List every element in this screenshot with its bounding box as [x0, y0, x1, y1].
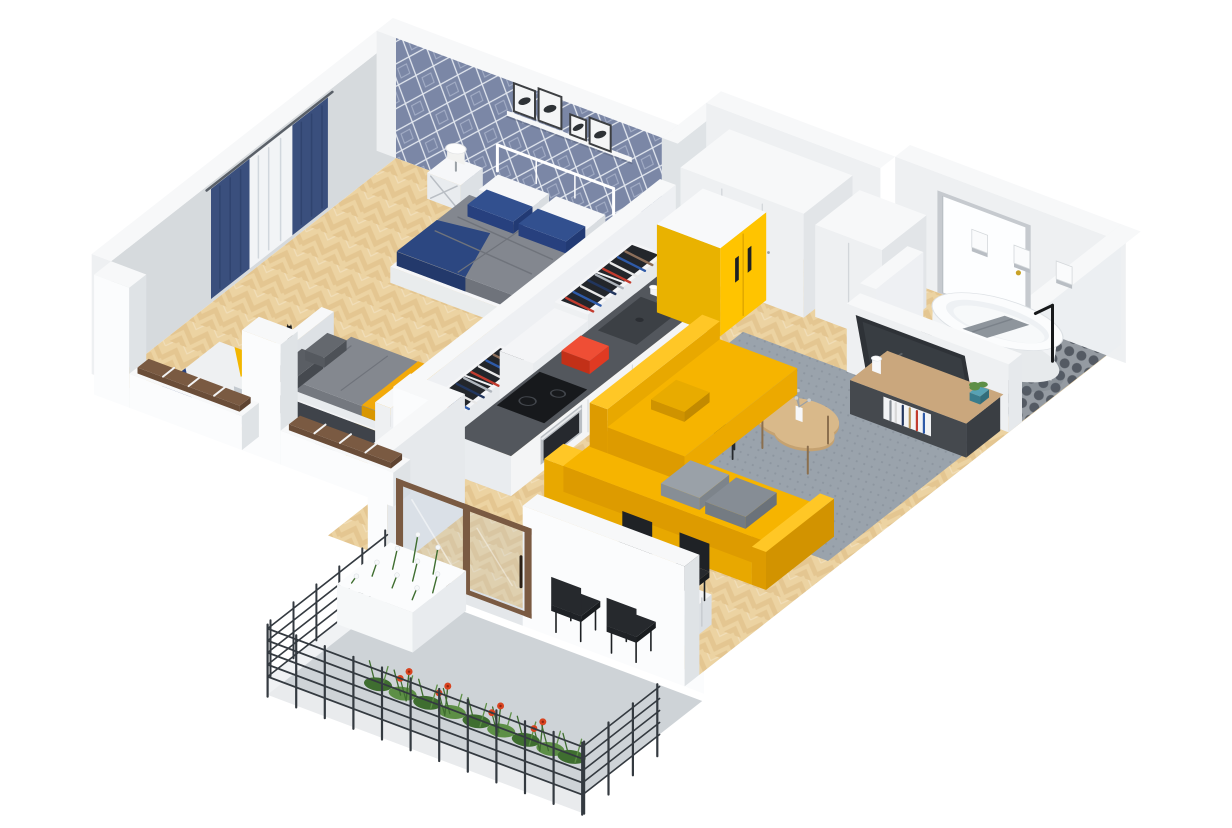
apartment-3d-floor-plan: [0, 0, 1232, 828]
gold-door-handle: [1016, 270, 1021, 275]
